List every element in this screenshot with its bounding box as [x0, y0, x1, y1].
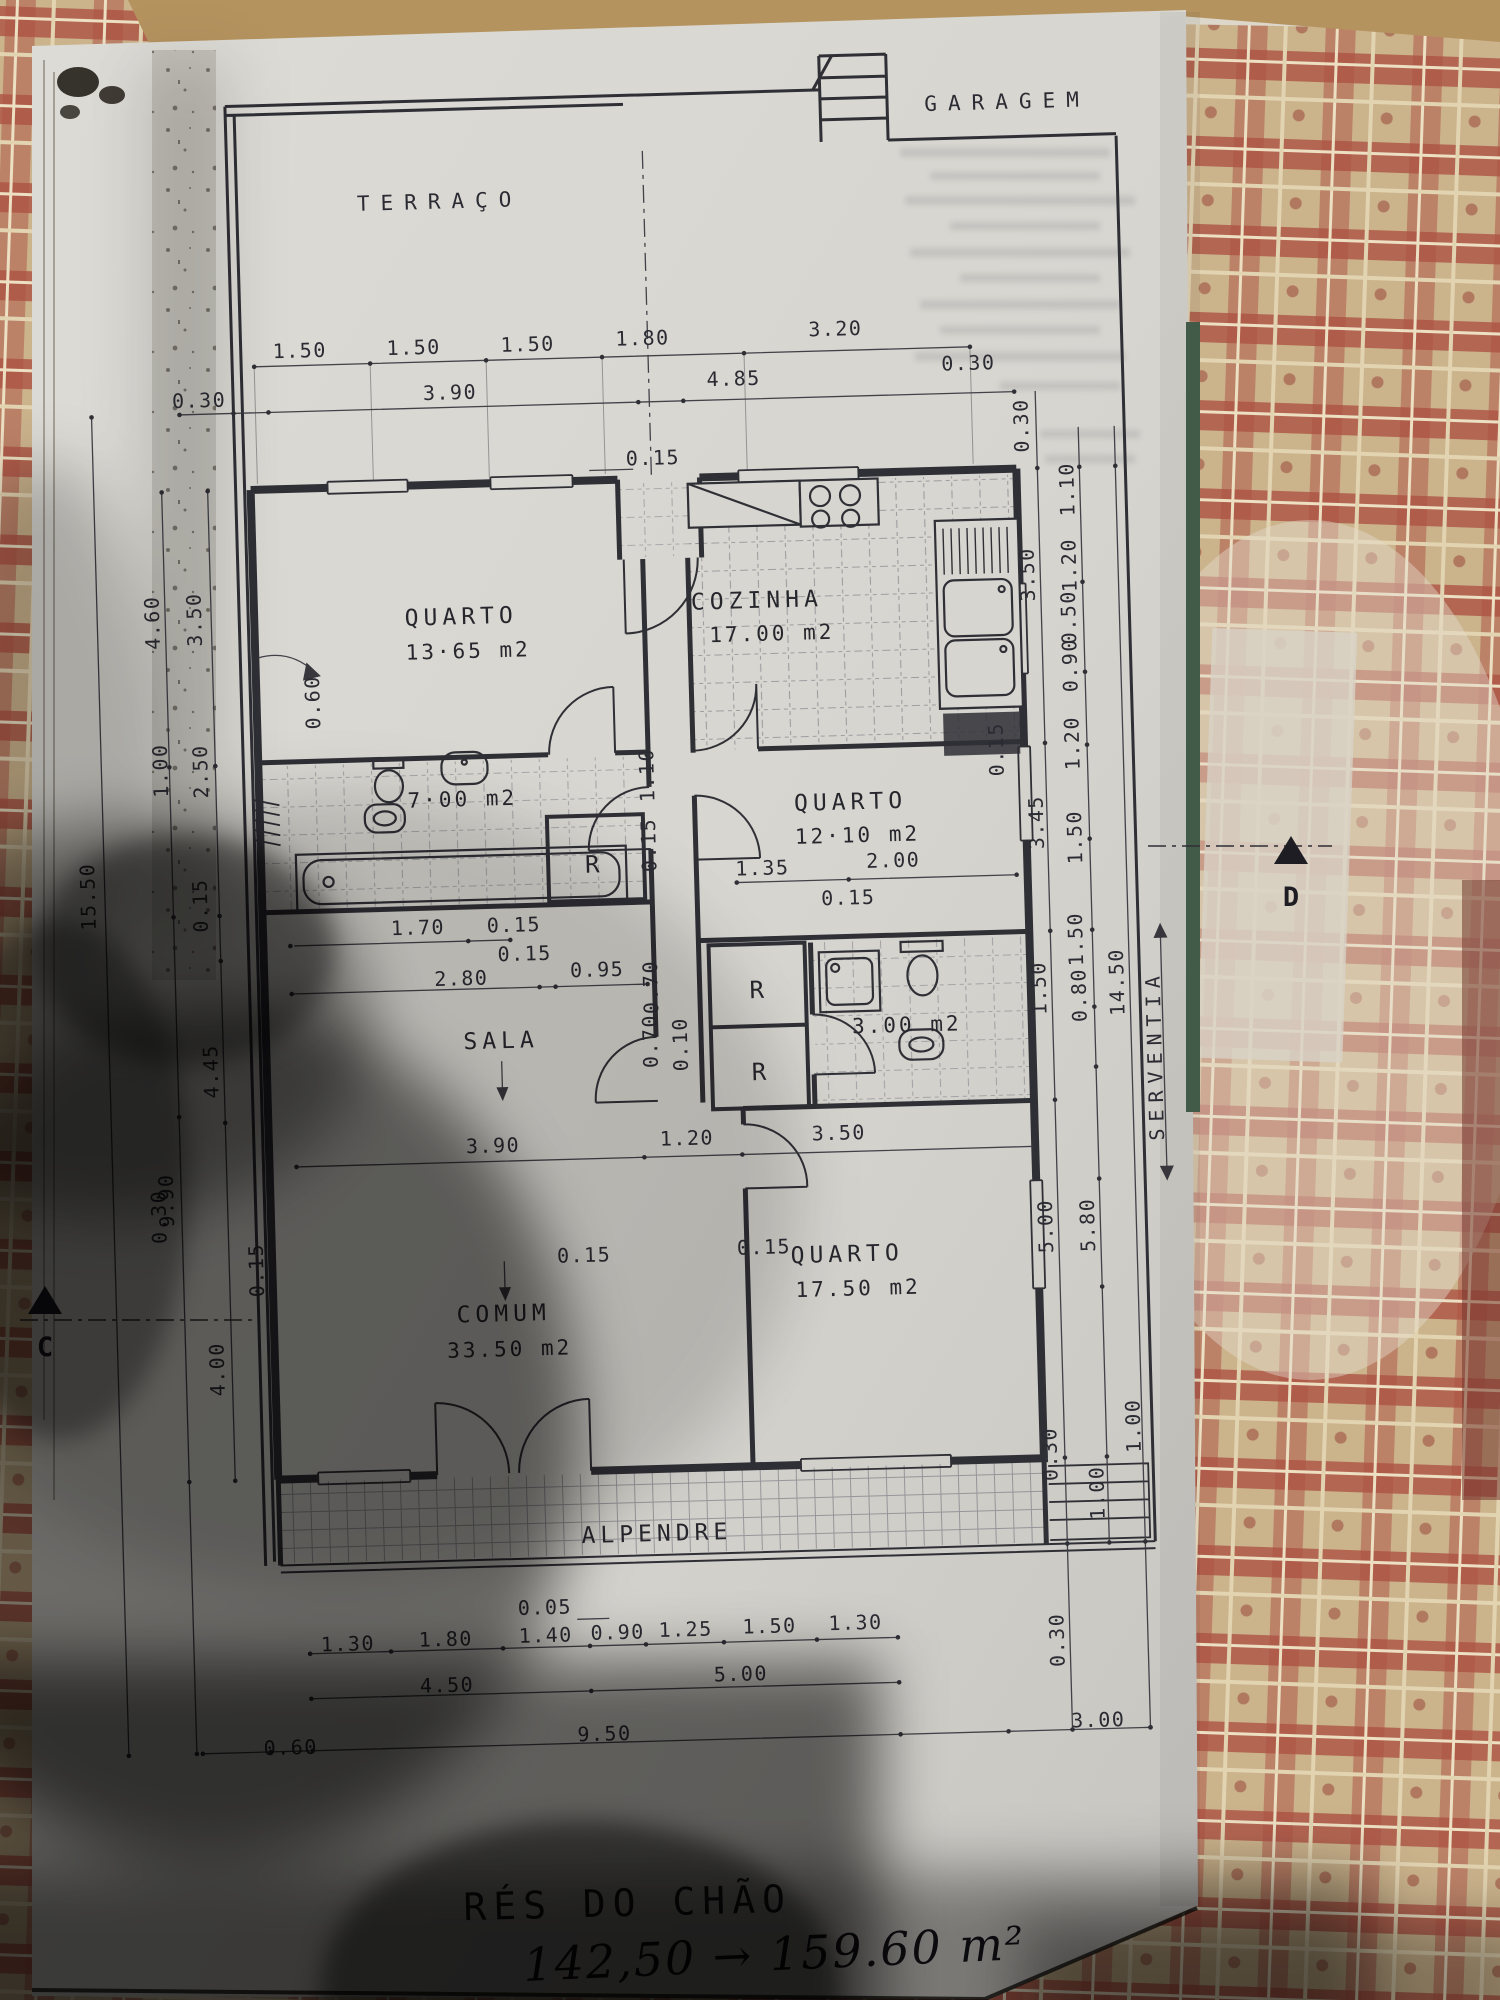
dimension-label: 1.10 [1054, 462, 1080, 517]
dimension-label: 5.80 [1075, 1197, 1101, 1252]
dimension-label: 0.15 [983, 722, 1009, 777]
dimension-label: 1.10 [634, 748, 660, 803]
room-area-label: 12·10 m2 [795, 821, 921, 848]
dimension-label: 1.00 [1084, 1465, 1110, 1520]
room-area-label: 17.00 m2 [709, 620, 835, 647]
dimension-label: 0.15 [625, 445, 680, 471]
paper-mark [57, 67, 99, 97]
dimension-label: 3.90 [423, 380, 478, 406]
room-area-label: 3.00 m2 [852, 1011, 962, 1038]
dimension-label: 0.15 [821, 885, 876, 911]
terrace-label: TERRAÇO [357, 187, 523, 216]
dimension-label: 0.80 [1066, 968, 1092, 1023]
dimension-label: 4.85 [706, 366, 761, 392]
garage-label: GARAGEM [924, 87, 1090, 116]
room-label: QUARTO [790, 1240, 904, 1269]
dimension-label: 0.90 [590, 1619, 645, 1645]
dimension-label: 1.00 [1120, 1398, 1146, 1453]
room-label: ALPENDRE [581, 1519, 732, 1549]
dimension-label: 1.20 [1059, 716, 1085, 771]
dimension-label: 1.35 [735, 855, 790, 881]
paper-mark [99, 86, 125, 104]
dimension-label: 0.50 [1056, 590, 1082, 645]
room-area-label: 13·65 m2 [405, 637, 531, 664]
dimension-label: 5.00 [1033, 1199, 1059, 1254]
paper-edge-shading [1160, 12, 1200, 1906]
serventia-label: SERVENTIA [1140, 969, 1169, 1141]
photo-of-floor-plan: 1.501.501.501.803.200.303.904.850.300.15… [0, 0, 1500, 2000]
room-label: QUARTO [794, 788, 908, 817]
sink-unit [935, 519, 1023, 709]
dimension-label: 3.50 [1015, 547, 1041, 602]
dimension-label: 3.45 [1023, 795, 1049, 850]
dimension-label: 0.30 [1044, 1612, 1070, 1667]
dimension-label: 0.60 [300, 675, 326, 730]
closet-marker: R [749, 976, 765, 1004]
section-marker-d: D [1283, 882, 1299, 913]
dimension-label: 1.50 [386, 335, 441, 361]
dimension-label: 0.30 [1008, 398, 1034, 453]
dimension-label: 14.50 [1104, 948, 1130, 1016]
dimension-label: 1.50 [500, 331, 555, 357]
cloth-fold-band [1462, 880, 1500, 1500]
dimension-label: 0.90 [1057, 638, 1083, 693]
dimension-label: 1.50 [1062, 810, 1088, 865]
dimension-label: 1.20 [1056, 538, 1082, 593]
dimension-label: 1.25 [658, 1617, 713, 1643]
dimension-label: 3.00 [1071, 1707, 1126, 1733]
dimension-label: 3.50 [811, 1120, 866, 1146]
room-label: QUARTO [404, 603, 518, 632]
dimension-label: 1.30 [828, 1610, 883, 1636]
floor-plan-photo: 1.501.501.501.803.200.303.904.850.300.15… [0, 0, 1500, 2000]
room-label: COZINHA [691, 586, 824, 616]
dimension-label: 1.50 [1063, 912, 1089, 967]
room-area-label: 17.50 m2 [795, 1275, 921, 1302]
dimension-label: 1.50 [742, 1613, 797, 1639]
dimension-label: 1.80 [615, 325, 670, 351]
paper-mark [60, 105, 80, 119]
dimension-label: 0.30 [941, 350, 996, 376]
dimension-label: 1.50 [272, 338, 327, 364]
dimension-label: 2.00 [866, 847, 921, 873]
dimension-label: 1.50 [1026, 961, 1052, 1016]
dimension-label: 3.20 [808, 316, 863, 342]
dimension-label: 0.30 [1037, 1427, 1063, 1482]
dimension-label: 0.15 [636, 818, 662, 873]
